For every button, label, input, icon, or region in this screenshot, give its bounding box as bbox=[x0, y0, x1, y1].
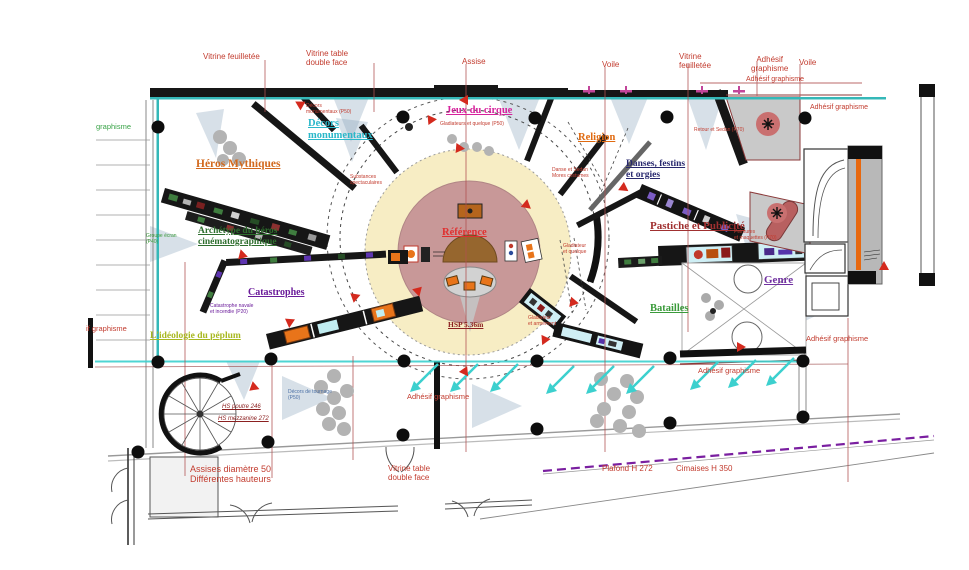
right-boundary-wall bbox=[919, 84, 935, 286]
vitrine-danses bbox=[636, 184, 745, 242]
bottom-left-walls bbox=[112, 447, 532, 545]
vitrine-gladiateur-2 bbox=[552, 322, 643, 358]
vitrine-green-stub bbox=[618, 256, 662, 268]
lift-shaft bbox=[848, 146, 882, 284]
spiral-staircase bbox=[161, 374, 240, 453]
top-wall bbox=[150, 85, 886, 100]
camera-dot bbox=[405, 123, 413, 131]
room-genre bbox=[680, 263, 806, 364]
cimaise-dashed-line bbox=[543, 436, 934, 471]
left-wall bbox=[88, 99, 159, 448]
bottom-right-lines bbox=[480, 436, 934, 519]
teal-bottom-line bbox=[95, 361, 806, 363]
floor-plan: Vitrine feuilletéeVitrine table double f… bbox=[0, 0, 969, 570]
plan-drawing bbox=[0, 0, 969, 570]
stair-block bbox=[804, 149, 848, 316]
arc-wall bbox=[590, 214, 598, 282]
